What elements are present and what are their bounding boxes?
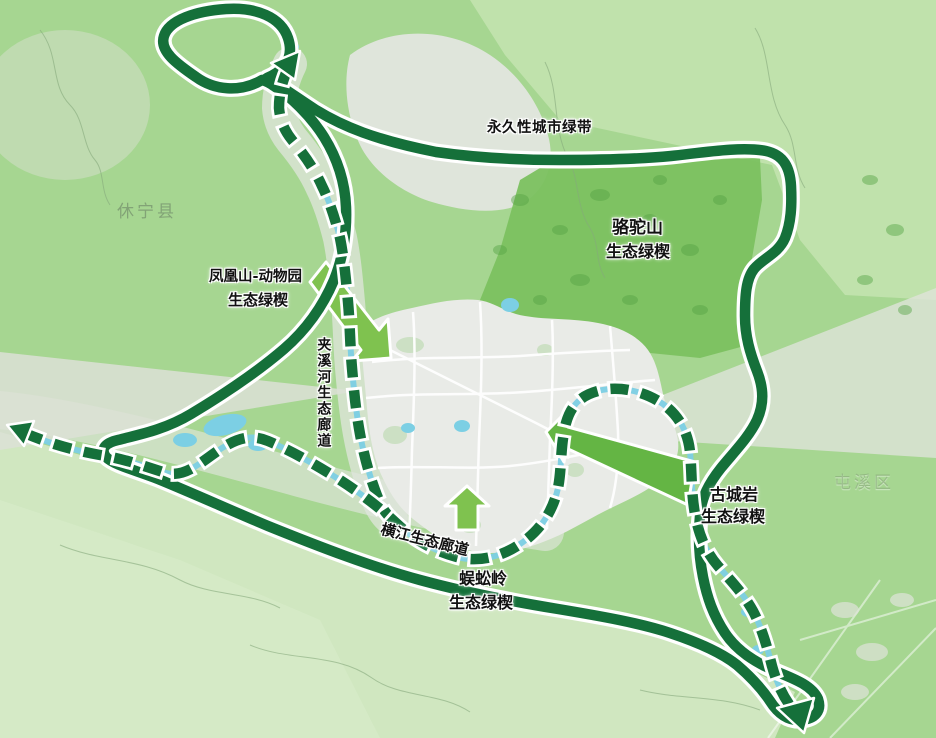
label-fenghuangshan-line2: 生态绿楔 (228, 292, 288, 309)
label-luotuoshan-line1: 骆驼山 (612, 219, 663, 238)
map-canvas (0, 0, 936, 738)
label-permanent-green-belt: 永久性城市绿带 (487, 121, 592, 137)
label-luotuoshan-line2: 生态绿楔 (606, 243, 670, 261)
ecological-structure-map: 永久性城市绿带 骆驼山 生态绿楔 凤凰山-动物园 生态绿楔 夹溪河生态廊道 横江… (0, 0, 936, 738)
label-jiaxihe-corridor: 夹溪河生态廊道 (315, 337, 330, 497)
label-fenghuangshan-line1: 凤凰山-动物园 (209, 270, 302, 286)
label-guchengyan-line2: 生态绿楔 (701, 508, 765, 526)
label-tunxi-district: 屯溪区 (834, 474, 894, 493)
label-wugongling-line1: 蜈蚣岭 (459, 570, 507, 588)
label-wugongling-line2: 生态绿楔 (449, 594, 513, 612)
label-xiuning-county: 休宁县 (117, 203, 177, 222)
label-guchengyan-line1: 古城岩 (710, 486, 758, 504)
